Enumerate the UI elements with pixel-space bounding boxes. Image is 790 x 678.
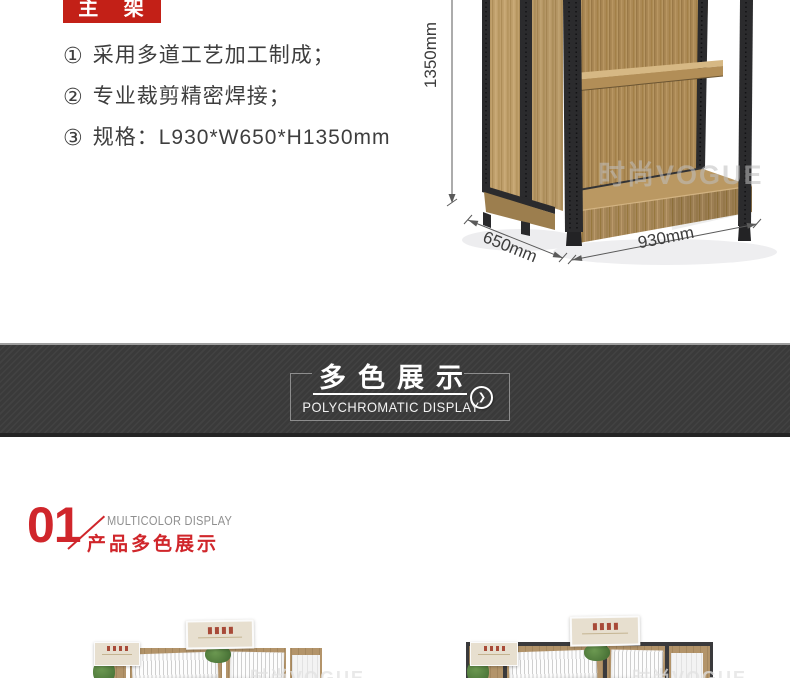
sign-characters bbox=[188, 626, 252, 634]
sign-board bbox=[94, 642, 140, 666]
dimension-height-label: 1350mm bbox=[421, 22, 440, 88]
sign-board bbox=[470, 642, 518, 666]
dim-height-line bbox=[447, 0, 457, 206]
feature-marker: ② bbox=[63, 83, 84, 111]
front-post-left bbox=[563, 0, 583, 232]
foot bbox=[483, 212, 491, 228]
photo-watermark: 时尚VOGUE bbox=[250, 664, 365, 678]
banner-frame-bottom bbox=[290, 420, 510, 421]
brand-watermark: 时尚VOGUE bbox=[598, 160, 764, 190]
banner-subtitle: POLYCHROMATIC DISPLAY bbox=[212, 399, 571, 415]
plant bbox=[584, 644, 610, 661]
section-title-cn: 产品多色展示 bbox=[87, 529, 219, 556]
banner-title: 多色展示 bbox=[196, 356, 586, 395]
dim-height-arrow bbox=[449, 194, 456, 203]
feature-item: ② 专业裁剪精密焊接； bbox=[63, 83, 391, 111]
shelf-render: 时尚VOGUE 1350mm 650mm bbox=[420, 0, 780, 272]
feature-marker: ① bbox=[63, 42, 84, 70]
sign-board bbox=[186, 619, 254, 649]
feature-item: ① 采用多道工艺加工制成； bbox=[63, 42, 391, 70]
feature-list: ① 采用多道工艺加工制成； ② 专业裁剪精密焊接； ③ 规格：L930*W650… bbox=[63, 42, 391, 165]
sign-characters bbox=[95, 646, 139, 651]
feature-text: 采用多道工艺加工制成； bbox=[93, 42, 335, 70]
product-detail-page: 主 架 ① 采用多道工艺加工制成； ② 专业裁剪精密焊接； ③ 规格：L930*… bbox=[0, 0, 790, 678]
photo-watermark: 时尚VOGUE bbox=[632, 664, 747, 678]
main-frame-badge: 主 架 bbox=[63, 0, 161, 23]
polychromatic-banner: 多色展示 POLYCHROMATIC DISPLAY ❯ bbox=[0, 343, 790, 437]
section-title-en: MULTICOLOR DISPLAY bbox=[107, 513, 232, 528]
sign-characters bbox=[471, 646, 517, 651]
feature-text: 专业裁剪精密焊接； bbox=[93, 83, 291, 111]
arrow-circle-icon: ❯ bbox=[470, 386, 493, 409]
feature-item: ③ 规格：L930*W650*H1350mm bbox=[63, 124, 391, 152]
product-photo-black-frame: 时尚VOGUE bbox=[466, 616, 713, 678]
side-panel-a bbox=[490, 0, 520, 198]
main-frame-badge-label: 主 架 bbox=[78, 0, 154, 21]
foot bbox=[566, 232, 582, 246]
product-photo-white-frame: 时尚VOGUE bbox=[92, 620, 325, 678]
shelf-render-svg: 时尚VOGUE 1350mm 650mm bbox=[420, 0, 780, 272]
feature-marker: ③ bbox=[63, 124, 84, 152]
banner-underline bbox=[313, 393, 467, 395]
dim-depth-arrow bbox=[468, 220, 478, 227]
foot bbox=[738, 226, 751, 241]
feature-text: 规格：L930*W650*H1350mm bbox=[93, 124, 391, 152]
sign-board bbox=[570, 615, 641, 646]
sign-characters bbox=[572, 622, 638, 630]
foot bbox=[521, 221, 530, 236]
